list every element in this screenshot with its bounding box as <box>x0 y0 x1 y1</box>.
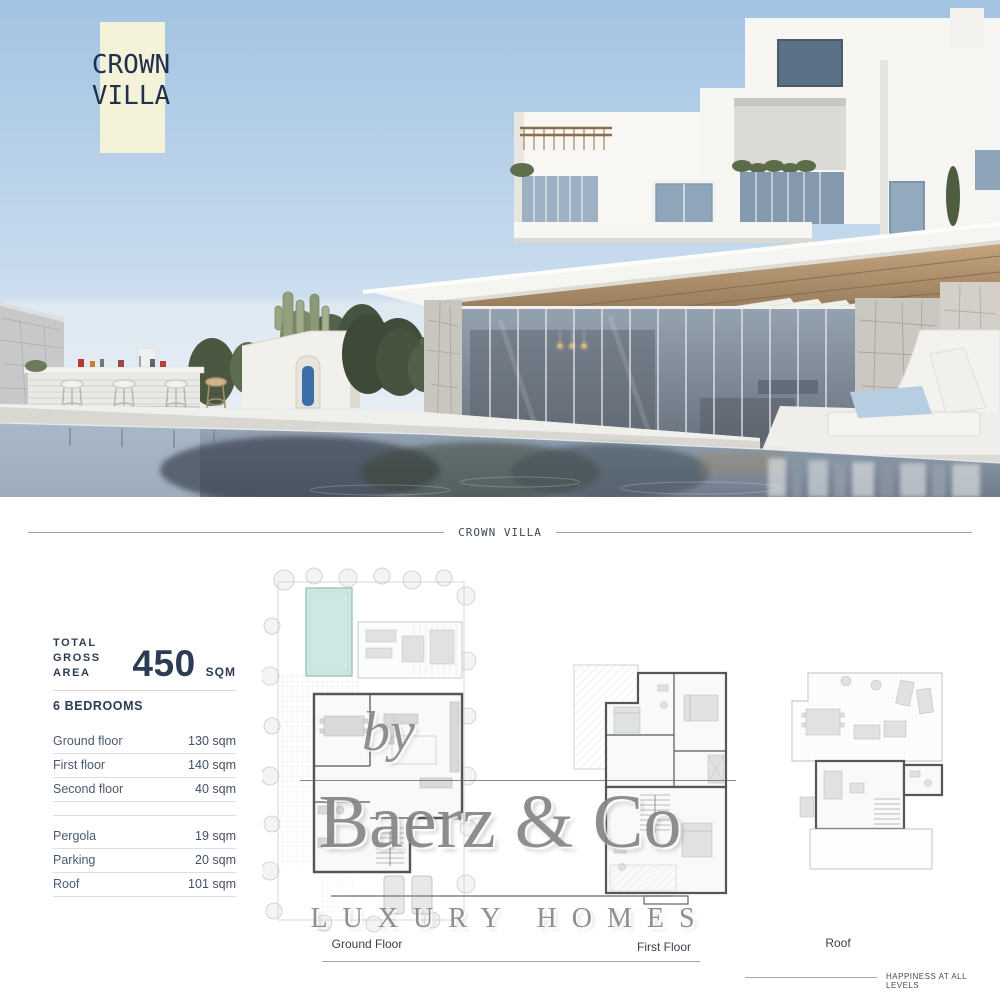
table-row: Roof 101 sqm <box>53 873 236 897</box>
watermark-rule <box>331 895 671 897</box>
table-row: First floor 140 sqm <box>53 754 236 778</box>
plan-label-roof: Roof <box>798 936 878 950</box>
ground-floor-plan <box>262 566 478 936</box>
row-value: 40 sqm <box>195 782 236 796</box>
badge-title: CROWN VILLA <box>56 50 206 112</box>
brochure-page: CROWN VILLA CROWN VILLA TOTAL GROSS AREA… <box>0 0 1000 1000</box>
cypress-tree <box>946 166 960 226</box>
row-value: 140 sqm <box>188 758 236 772</box>
row-label: Pergola <box>53 829 96 843</box>
section-divider: CROWN VILLA <box>28 524 972 540</box>
total-label-line1: TOTAL <box>53 636 122 651</box>
row-value: 20 sqm <box>195 853 236 867</box>
divider-label: CROWN VILLA <box>444 526 556 539</box>
plan-reference-line <box>300 780 736 781</box>
pool-house <box>242 331 360 408</box>
bar-plant <box>25 360 47 372</box>
bedrooms-label: 6 BEDROOMS <box>53 699 236 713</box>
pergola-terrace <box>358 622 462 678</box>
table-group-gap <box>53 816 236 825</box>
chimney <box>950 8 984 48</box>
balcony-slab <box>514 222 812 240</box>
area-stats-panel: TOTAL GROSS AREA 450 SQM 6 BEDROOMS Grou… <box>53 636 236 897</box>
plan-label-first: First Floor <box>614 940 714 954</box>
total-area-value: 450 <box>132 647 195 681</box>
table-row: Ground floor 130 sqm <box>53 730 236 754</box>
stats-divider <box>53 690 236 691</box>
balcony-plants <box>732 160 816 173</box>
row-value: 19 sqm <box>195 829 236 843</box>
row-label: Ground floor <box>53 734 122 748</box>
row-label: Roof <box>53 877 79 891</box>
lower-roof-area <box>810 829 932 869</box>
divider-line-right <box>556 532 972 533</box>
row-label: First floor <box>53 758 105 772</box>
divider-line-left <box>28 532 444 533</box>
badge-title-line2: VILLA <box>56 81 206 112</box>
row-label: Parking <box>53 853 95 867</box>
row-value: 101 sqm <box>188 877 236 891</box>
footer-rule <box>745 977 877 978</box>
bedroom-window <box>890 182 924 234</box>
table-group-gap <box>53 802 236 816</box>
blue-vase <box>302 366 314 406</box>
table-row: Second floor 40 sqm <box>53 778 236 802</box>
total-area-unit: SQM <box>206 665 236 681</box>
badge-title-line1: CROWN <box>56 50 206 81</box>
plan-annex-box <box>644 896 688 904</box>
plan-caption-rule <box>322 961 700 962</box>
total-gross-area: TOTAL GROSS AREA 450 SQM <box>53 636 236 681</box>
swimming-pool <box>306 588 352 676</box>
row-label: Second floor <box>53 782 123 796</box>
table-row: Parking 20 sqm <box>53 849 236 873</box>
total-label-line2: GROSS AREA <box>53 651 122 681</box>
plan-label-ground: Ground Floor <box>312 937 422 951</box>
upper-window <box>778 40 842 86</box>
floor-areas-table: Ground floor 130 sqm First floor 140 sqm… <box>53 730 236 897</box>
row-value: 130 sqm <box>188 734 236 748</box>
roof-plan <box>780 665 964 875</box>
table-row: Pergola 19 sqm <box>53 825 236 849</box>
total-gross-area-label: TOTAL GROSS AREA <box>53 636 122 681</box>
footer-motto: HAPPINESS AT ALL LEVELS <box>886 972 1000 990</box>
